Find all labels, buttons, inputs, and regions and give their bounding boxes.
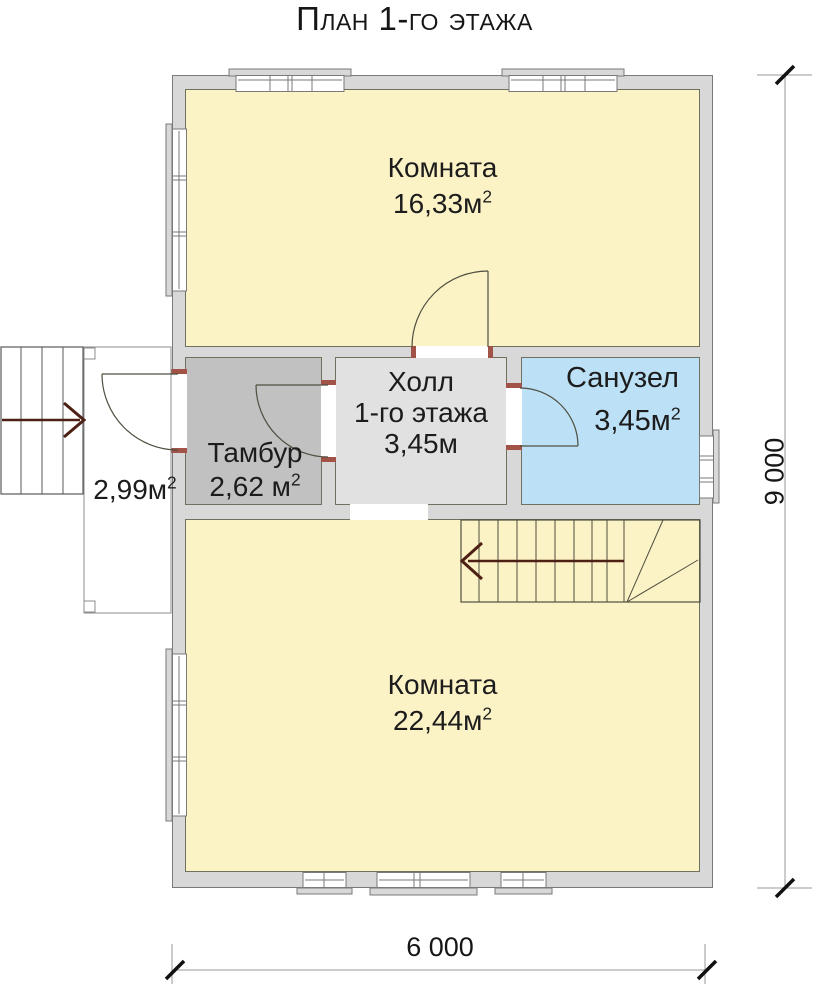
opening-hall-passage (350, 504, 428, 520)
dimension-horizontal-value: 6 000 (340, 932, 540, 963)
room-bottom-label: Комната 22,44м2 (185, 667, 700, 739)
plan-title: План 1-го этажа (0, 0, 829, 38)
porch-area-label: 2,99м2 (85, 472, 185, 508)
entrance-arrow (2, 403, 84, 437)
room-name: Тамбур (180, 436, 330, 470)
room-area: 16,33м2 (185, 186, 700, 222)
room-hall-label: Холл 1-го этажа 3,45м (335, 366, 507, 459)
door-jamb (171, 369, 187, 374)
room-name: Комната (185, 150, 700, 186)
room-sanuzel-label: Санузел (535, 360, 710, 396)
door-jamb (506, 445, 522, 450)
door-jamb (321, 380, 336, 385)
door-jamb (411, 346, 416, 358)
room-area: 3,45м (335, 428, 507, 459)
room-name: Комната (185, 667, 700, 703)
room-name: Холл (335, 366, 507, 397)
door-jamb (488, 346, 493, 358)
room-name-2: 1-го этажа (335, 397, 507, 428)
opening-roomtop-door (416, 346, 488, 358)
room-sanuzel-area: 3,45м2 (550, 403, 725, 439)
opening-sanuzel-door (506, 388, 522, 445)
porch-corner-hook (84, 601, 95, 612)
room-area: 2,62 м2 (180, 470, 330, 504)
room-area: 22,44м2 (185, 703, 700, 739)
dimension-vertical-value: 9 000 (760, 420, 791, 524)
floor-plan: План 1-го этажа (0, 0, 829, 1000)
porch-corner-hook (84, 348, 95, 359)
door-swing-entrance (102, 374, 178, 450)
door-jamb (506, 383, 522, 388)
room-top-label: Комната 16,33м2 (185, 150, 700, 222)
room-tambur-label: Тамбур 2,62 м2 (180, 436, 330, 504)
